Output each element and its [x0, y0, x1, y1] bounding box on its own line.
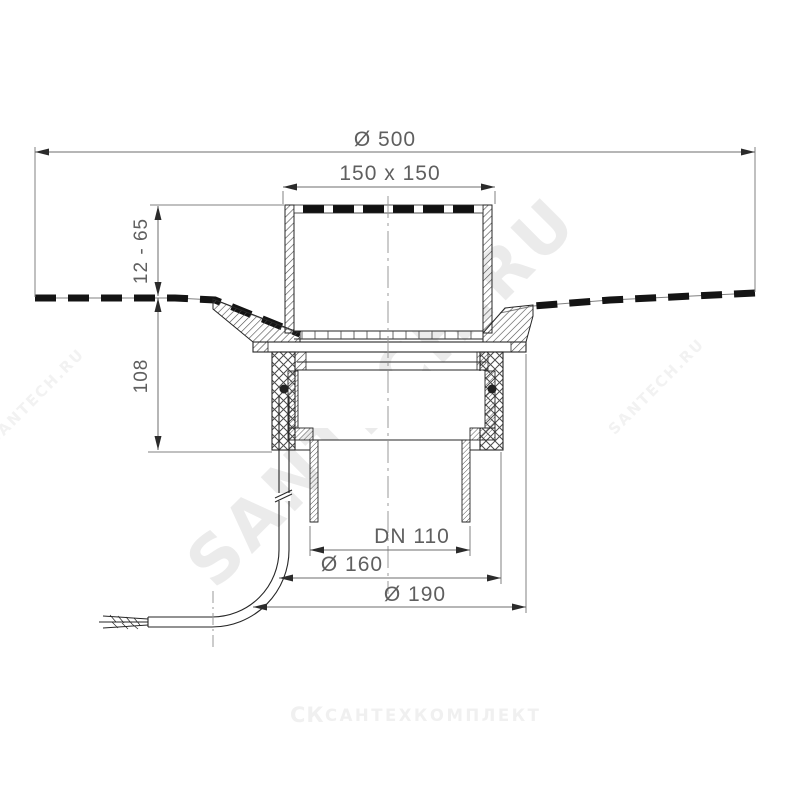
dim-body-height — [155, 298, 162, 450]
outlet-pipe — [310, 440, 470, 522]
flange-ring — [253, 342, 526, 352]
label-grate-size: 150 x 150 — [339, 162, 440, 185]
vendor-logo-text: САНТЕХКОМПЛЕКТ — [325, 706, 541, 725]
box-wall-left — [285, 205, 294, 333]
dim-body-diameter — [279, 575, 501, 582]
label-diameter-top: Ø 500 — [354, 128, 416, 151]
box-wall-right — [483, 205, 492, 333]
label-flange-diameter: Ø 190 — [384, 583, 446, 606]
heating-contact-left — [280, 385, 289, 394]
vendor-logo: СК САНТЕХКОМПЛЕКТ — [290, 703, 541, 727]
drain-technical-drawing-page: SANTECH.RU SANTECH.RU SANTECH.RU СК САНТ… — [0, 0, 800, 800]
label-mounting-height: 12 - 65 — [131, 218, 152, 284]
watermark-right: SANTECH.RU — [605, 335, 709, 439]
membrane-right — [500, 293, 755, 313]
dim-mounting-height — [155, 206, 162, 296]
heating-contact-right — [488, 385, 497, 394]
cable-strands — [99, 615, 148, 629]
label-body-diameter: Ø 160 — [321, 553, 383, 576]
label-body-height: 108 — [131, 359, 152, 394]
label-outlet-diameter: DN 110 — [374, 525, 450, 548]
watermark-left: SANTECH.RU — [0, 345, 88, 449]
technical-drawing: SANTECH.RU SANTECH.RU SANTECH.RU СК САНТ… — [0, 0, 800, 800]
vendor-logo-mark: СК — [290, 703, 325, 727]
